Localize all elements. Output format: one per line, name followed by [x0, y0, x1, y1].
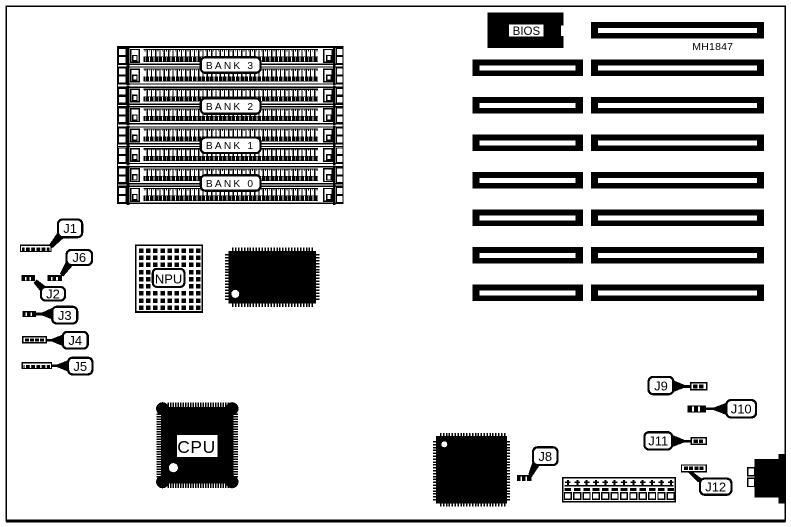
- svg-text:BANK 2: BANK 2: [206, 102, 255, 113]
- svg-text:J6: J6: [72, 250, 86, 265]
- svg-text:J3: J3: [58, 308, 72, 323]
- svg-text:J4: J4: [68, 333, 82, 348]
- svg-text:MH1847: MH1847: [692, 41, 733, 53]
- svg-text:BANK 1: BANK 1: [206, 141, 255, 152]
- svg-text:J12: J12: [705, 479, 726, 494]
- svg-text:J11: J11: [648, 434, 668, 449]
- svg-text:J9: J9: [654, 378, 668, 393]
- svg-text:BANK 0: BANK 0: [206, 179, 255, 190]
- svg-text:NPU: NPU: [155, 271, 182, 286]
- svg-text:J1: J1: [63, 221, 77, 236]
- svg-text:CPU: CPU: [177, 437, 215, 457]
- svg-text:J8: J8: [538, 449, 552, 464]
- svg-text:J10: J10: [731, 401, 752, 416]
- svg-text:J2: J2: [46, 286, 60, 301]
- svg-text:BIOS: BIOS: [513, 26, 541, 38]
- svg-text:BANK 3: BANK 3: [206, 61, 255, 72]
- svg-text:J5: J5: [73, 359, 87, 374]
